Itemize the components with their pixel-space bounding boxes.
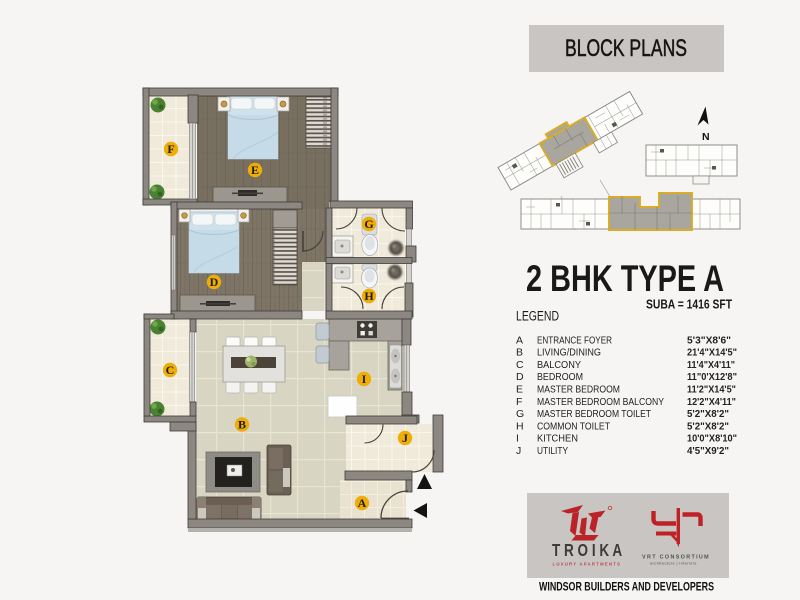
svg-text:12'2"X4'11": 12'2"X4'11" — [687, 396, 736, 408]
svg-text:21'4"X14'5": 21'4"X14'5" — [687, 347, 737, 359]
svg-text:G: G — [364, 217, 373, 231]
svg-text:5'2"X8'2": 5'2"X8'2" — [687, 420, 729, 432]
svg-text:ENTRANCE FOYER: ENTRANCE FOYER — [537, 334, 612, 346]
svg-text:11"0'X12'8": 11"0'X12'8" — [687, 371, 737, 383]
svg-text:COMMON TOILET: COMMON TOILET — [537, 420, 610, 432]
svg-text:MASTER BEDROOM TOILET: MASTER BEDROOM TOILET — [537, 408, 651, 420]
svg-text:11'4"X4'11": 11'4"X4'11" — [687, 359, 735, 371]
svg-text:D: D — [210, 275, 219, 289]
svg-text:4'5"X9'2": 4'5"X9'2" — [687, 445, 729, 457]
svg-text:T R O I K A: T R O I K A — [552, 541, 622, 561]
svg-text:D: D — [516, 371, 524, 383]
svg-text:B: B — [516, 347, 523, 359]
svg-text:N: N — [702, 131, 710, 143]
svg-text:architecture | interiors: architecture | interiors — [650, 561, 697, 566]
svg-text:E: E — [251, 163, 259, 177]
svg-text:F: F — [516, 396, 522, 408]
svg-text:WINDSOR BUILDERS AND DEVELOPER: WINDSOR BUILDERS AND DEVELOPERS — [539, 582, 714, 594]
svg-text:C: C — [166, 363, 175, 377]
svg-text:E: E — [516, 384, 523, 396]
svg-text:BALCONY: BALCONY — [537, 359, 581, 371]
svg-text:G: G — [516, 408, 524, 420]
svg-text:J: J — [402, 431, 408, 445]
svg-text:KITCHEN: KITCHEN — [537, 433, 578, 445]
svg-text:H: H — [364, 289, 374, 303]
svg-text:I: I — [516, 433, 519, 445]
svg-text:A: A — [516, 334, 523, 346]
svg-text:2 BHK TYPE A: 2 BHK TYPE A — [526, 258, 724, 299]
svg-text:F: F — [167, 142, 174, 156]
svg-text:I: I — [362, 372, 367, 386]
svg-text:H: H — [516, 420, 524, 432]
svg-text:A: A — [358, 496, 367, 510]
svg-text:BLOCK PLANS: BLOCK PLANS — [565, 35, 687, 62]
svg-text:SUBA = 1416 SFT: SUBA = 1416 SFT — [646, 298, 732, 312]
svg-text:LEGEND: LEGEND — [516, 309, 559, 324]
svg-text:11'2"X14'5": 11'2"X14'5" — [687, 384, 736, 396]
svg-text:5'3"X8'6": 5'3"X8'6" — [687, 334, 731, 346]
svg-text:MASTER BEDROOM: MASTER BEDROOM — [537, 384, 620, 396]
svg-text:LUXURY APARTMENTS: LUXURY APARTMENTS — [553, 562, 622, 567]
svg-text:B: B — [238, 418, 246, 432]
svg-text:10'0"X8'10": 10'0"X8'10" — [687, 433, 737, 445]
svg-text:MASTER BEDROOM BALCONY: MASTER BEDROOM BALCONY — [537, 396, 664, 408]
svg-text:5'2"X8'2": 5'2"X8'2" — [687, 408, 729, 420]
svg-text:LIVING/DINING: LIVING/DINING — [537, 347, 601, 359]
svg-text:J: J — [516, 445, 521, 457]
svg-text:BEDROOM: BEDROOM — [537, 371, 583, 383]
svg-text:C: C — [516, 359, 524, 371]
svg-text:UTILITY: UTILITY — [537, 445, 568, 457]
